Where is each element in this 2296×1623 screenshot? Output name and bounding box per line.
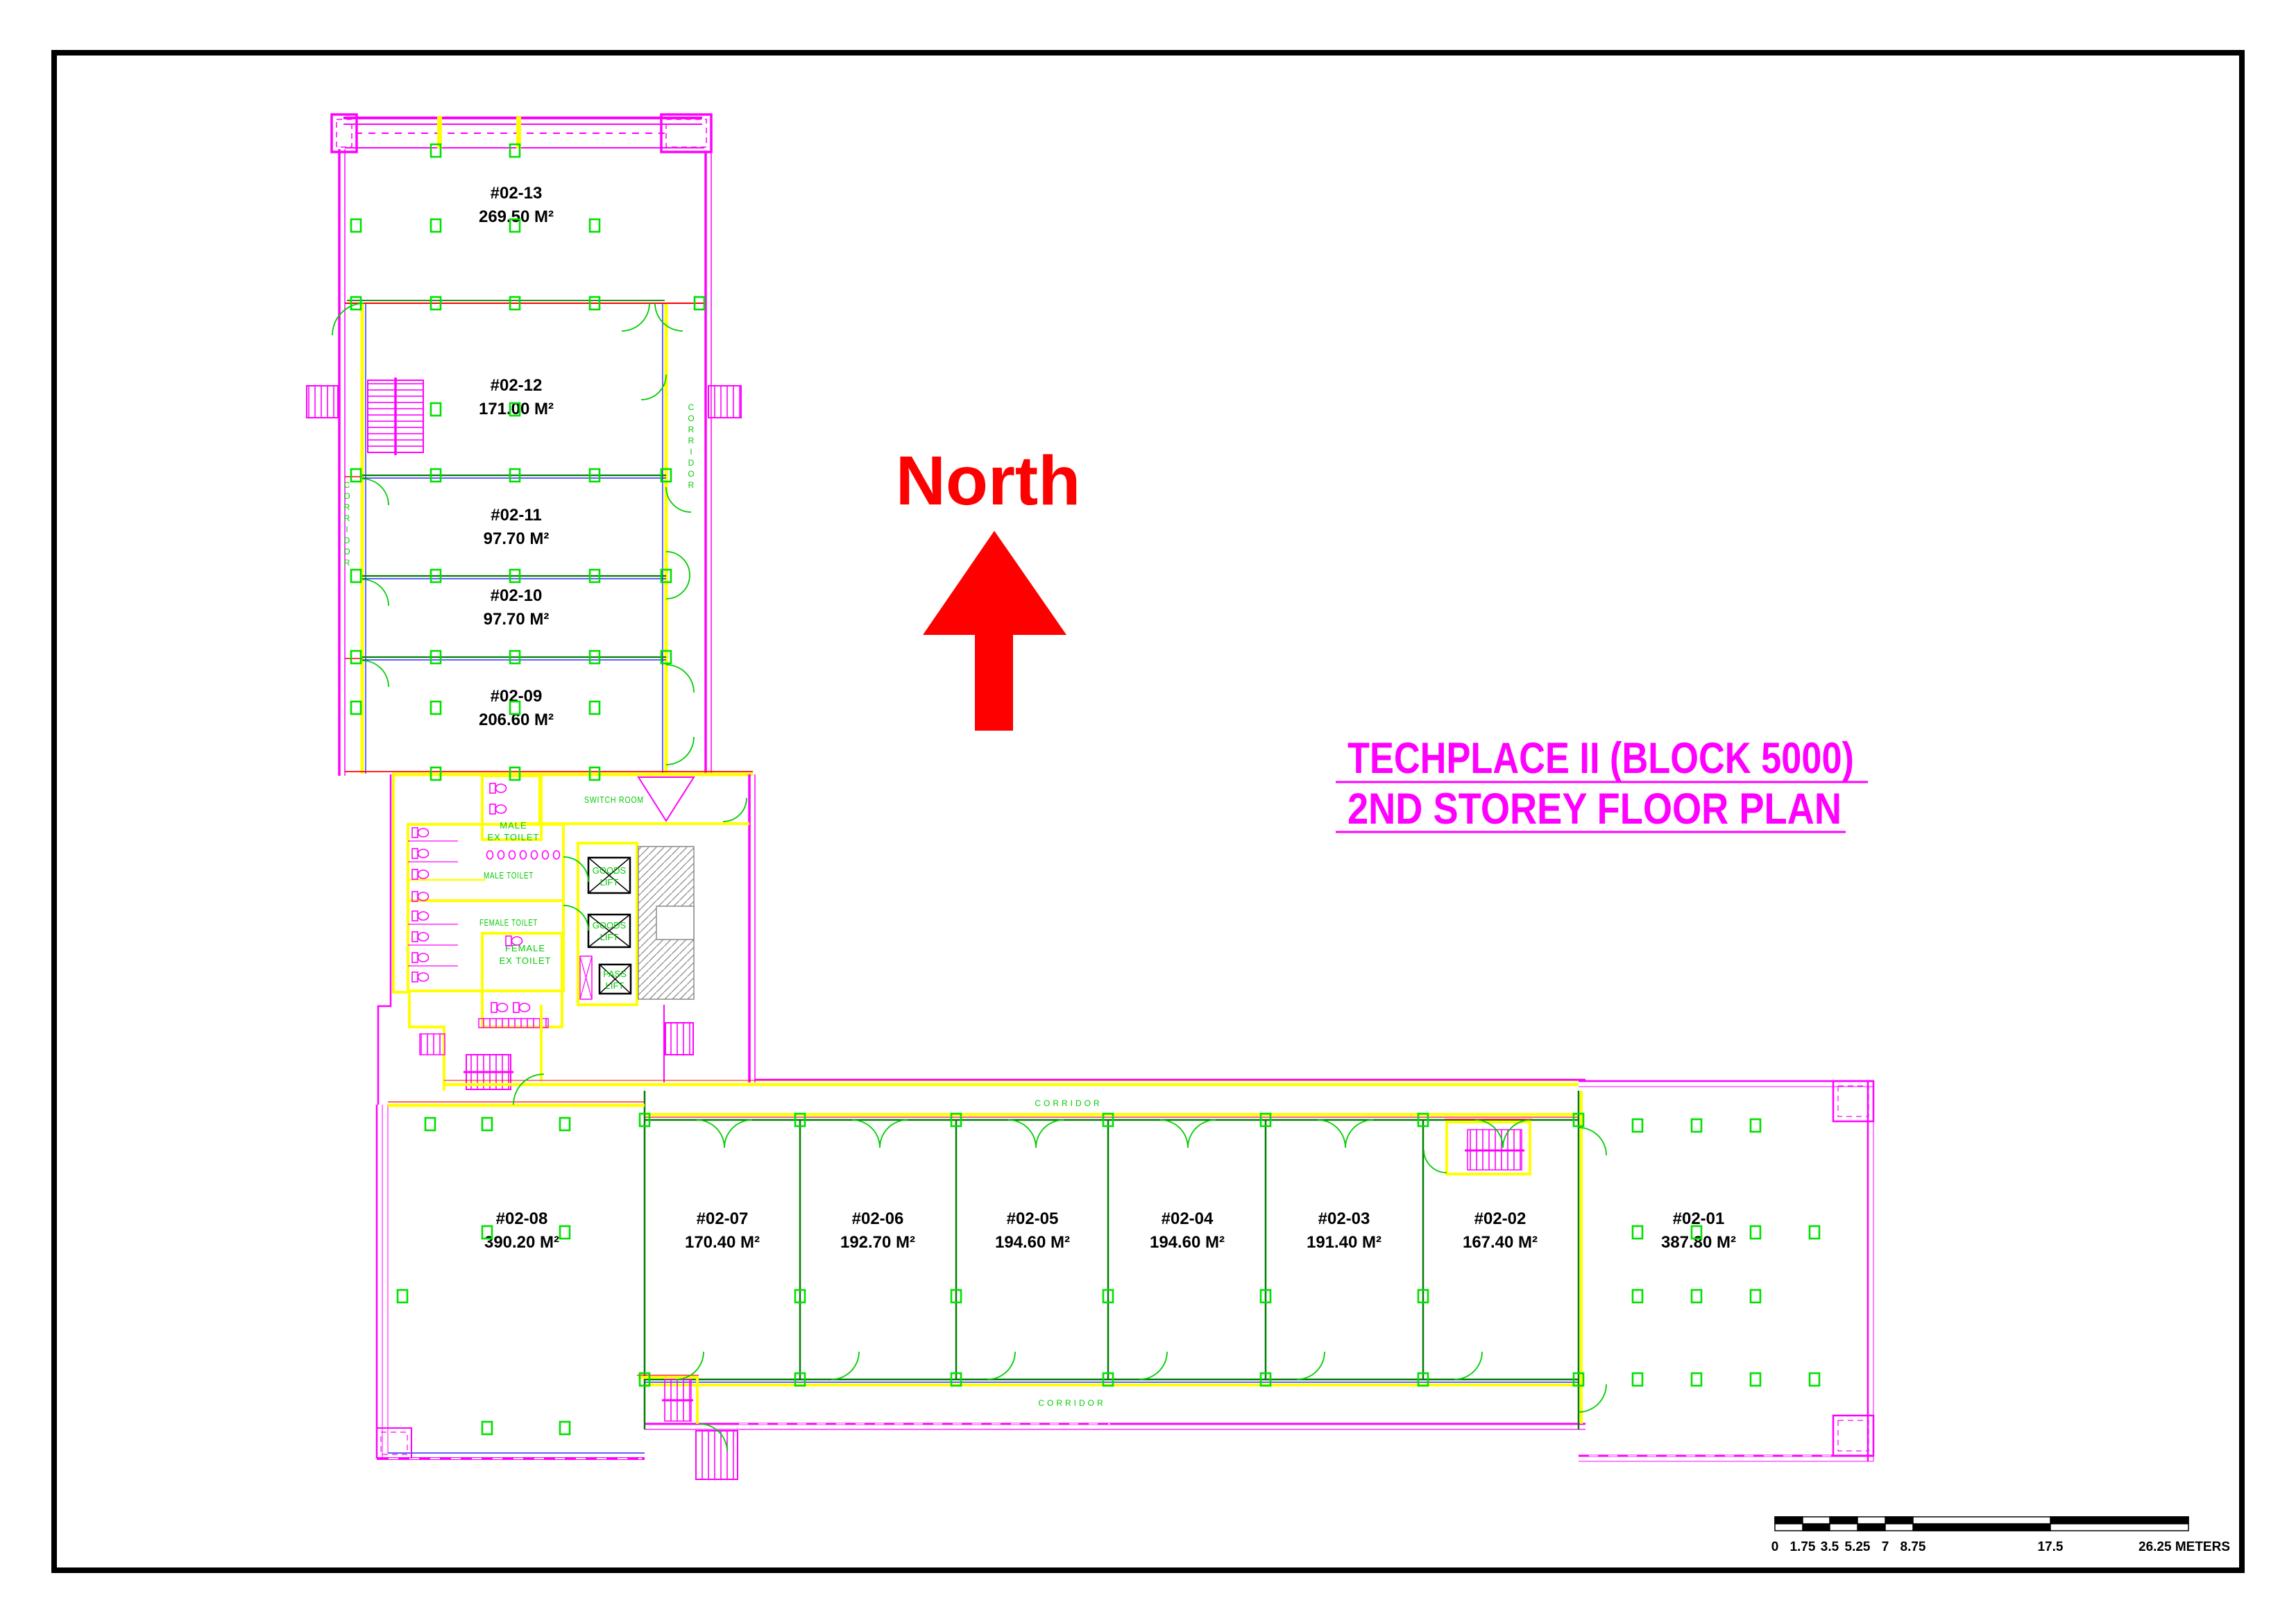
female-toilet-label: FEMALE TOILET: [479, 917, 538, 928]
unit-02-03-id: #02-03: [1318, 1209, 1370, 1228]
bottom-wing: [377, 1080, 1873, 1479]
corridor-door-swings: [676, 1120, 1531, 1379]
scale-tick-3: 5.25: [1845, 1540, 1871, 1554]
core-block: [345, 772, 755, 1105]
unit-02-04-id: #02-04: [1162, 1209, 1214, 1228]
goods-lift-1-label-1: GOODS: [593, 865, 627, 876]
toilet-fixtures: [412, 783, 560, 1012]
male-ex-toilet-label-1: MALE: [500, 820, 527, 831]
switch-room-label: SWITCH ROOM: [584, 794, 644, 805]
unit-02-03-area: 191.40 M²: [1307, 1233, 1381, 1252]
unit-02-01-area: 387.80 M²: [1661, 1233, 1736, 1252]
unit-02-04-area: 194.60 M²: [1150, 1233, 1225, 1252]
unit-02-02-id: #02-02: [1474, 1209, 1527, 1228]
scale-bar: 0 1.75 3.5 5.25 7 8.75 17.5 26.25 METERS: [1771, 1517, 2230, 1554]
scale-tick-5: 8.75: [1900, 1540, 1926, 1554]
north-indicator: North: [896, 442, 1081, 731]
pass-lift-label-2: LIFT: [606, 980, 624, 991]
floor-plan-drawing: North TECHPLACE II (BLOCK 5000) 2ND STOR…: [0, 0, 2296, 1623]
unit-02-07-area: 170.40 M²: [685, 1233, 760, 1252]
goods-lift-1-label-2: LIFT: [600, 877, 619, 887]
unit-02-06-id: #02-06: [852, 1209, 904, 1228]
north-label: North: [896, 442, 1081, 520]
unit-02-08-id: #02-08: [496, 1209, 548, 1228]
title-line-1: TECHPLACE II (BLOCK 5000): [1347, 734, 1854, 783]
scale-tick-1: 1.75: [1790, 1540, 1816, 1554]
pass-lift-label-1: PASS: [603, 969, 627, 979]
title-line-2: 2ND STOREY FLOOR PLAN: [1347, 785, 1842, 833]
floor-plan-page: North TECHPLACE II (BLOCK 5000) 2ND STOR…: [0, 0, 2296, 1623]
unit-02-13-area: 269.50 M²: [479, 207, 554, 226]
male-ex-toilet-label-2: EX TOILET: [488, 832, 540, 842]
corridor-label-right: CORRIDOR: [686, 402, 696, 491]
scale-tick-0: 0: [1771, 1540, 1779, 1554]
unit-02-02-area: 167.40 M²: [1463, 1233, 1538, 1252]
scale-tick-4: 7: [1882, 1540, 1889, 1554]
unit-02-10-area: 97.70 M²: [484, 610, 550, 629]
unit-02-10-id: #02-10: [491, 586, 543, 605]
unit-02-12-id: #02-12: [491, 376, 543, 395]
male-toilet-label: MALE TOILET: [484, 870, 534, 881]
unit-02-05-area: 194.60 M²: [995, 1233, 1070, 1252]
unit-02-07-id: #02-07: [697, 1209, 749, 1228]
unit-02-05-id: #02-05: [1007, 1209, 1059, 1228]
goods-lift-2-label-2: LIFT: [600, 932, 619, 942]
unit-02-13-id: #02-13: [491, 184, 543, 203]
corridor-label-bottom: CORRIDOR: [1038, 1398, 1105, 1408]
unit-02-11-id: #02-11: [491, 506, 541, 525]
unit-02-11-area: 97.70 M²: [484, 529, 550, 548]
scale-tick-2: 3.5: [1821, 1540, 1839, 1554]
goods-lift-2-label-1: GOODS: [593, 920, 627, 931]
unit-02-08-area: 390.20 M²: [484, 1233, 559, 1252]
north-arrow-icon: [923, 531, 1066, 731]
corridor-label-left: CORRIDOR: [342, 480, 352, 569]
unit-02-06-area: 192.70 M²: [840, 1233, 915, 1252]
scale-tick-6: 17.5: [2038, 1540, 2064, 1554]
corridor-label-top: CORRIDOR: [1035, 1098, 1102, 1108]
unit-02-09-id: #02-09: [491, 687, 543, 706]
female-ex-toilet-label-2: EX TOILET: [500, 955, 552, 966]
drawing-title: TECHPLACE II (BLOCK 5000) 2ND STOREY FLO…: [1336, 734, 1868, 833]
scale-end-label: 26.25 METERS: [2138, 1540, 2230, 1554]
